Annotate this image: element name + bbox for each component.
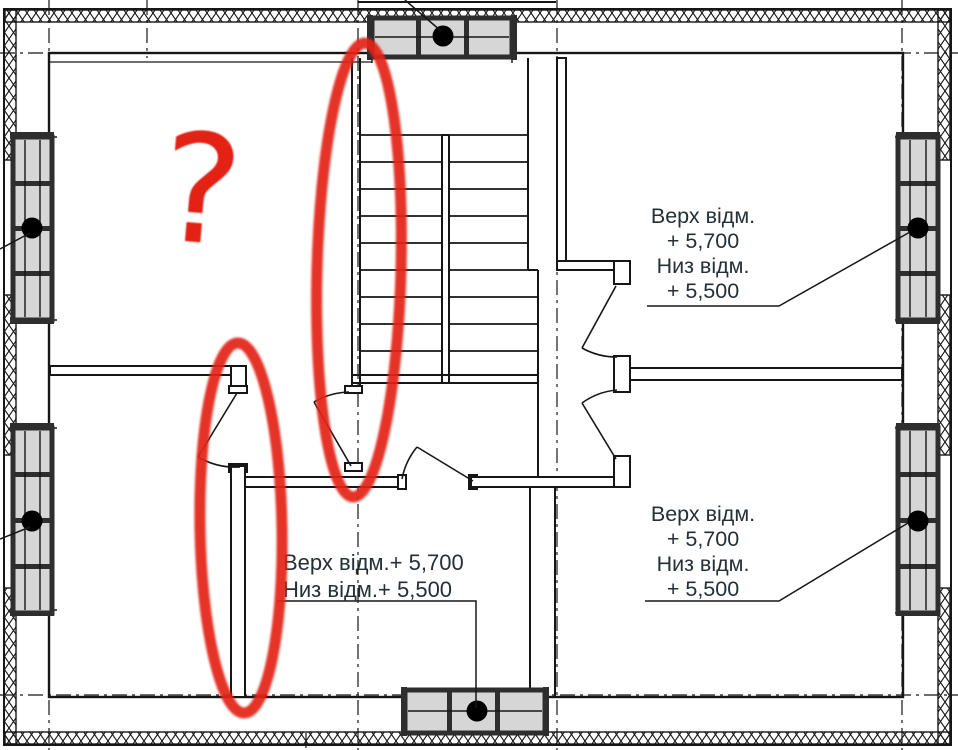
marker-oval-left-wall: [197, 342, 285, 713]
floor-plan: Верх відм. + 5,700 Низ відм. + 5,500 Вер…: [0, 0, 958, 750]
marker-oval-stair-wall: [311, 42, 407, 498]
marker-overlay: [0, 0, 958, 750]
